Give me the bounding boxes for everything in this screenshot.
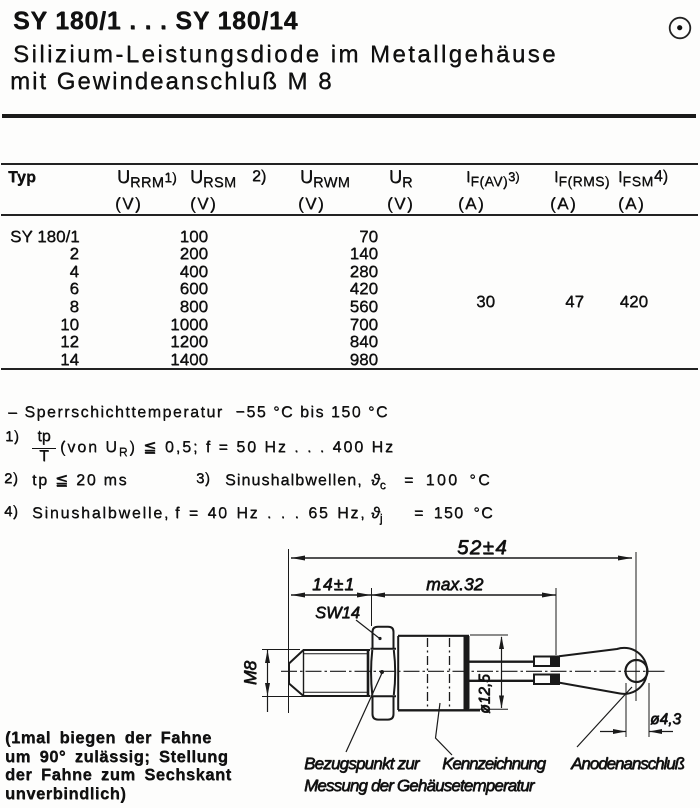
svg-text:Kennzeichnung: Kennzeichnung: [442, 754, 547, 773]
svg-text:max.32: max.32: [426, 574, 484, 594]
svg-text:ø4,3: ø4,3: [650, 711, 681, 728]
svg-text:M8: M8: [240, 661, 260, 686]
svg-text:SW14: SW14: [315, 604, 360, 622]
svg-text:Anodenanschluß: Anodenanschluß: [570, 754, 685, 773]
svg-text:14±1: 14±1: [312, 574, 355, 594]
svg-text:Bezugspunkt zur: Bezugspunkt zur: [304, 754, 421, 773]
svg-text:Messung der Gehäusetemperatur: Messung der Gehäusetemperatur: [304, 776, 536, 795]
svg-text:52±4: 52±4: [457, 536, 508, 559]
svg-text:ø12,5: ø12,5: [477, 674, 494, 714]
